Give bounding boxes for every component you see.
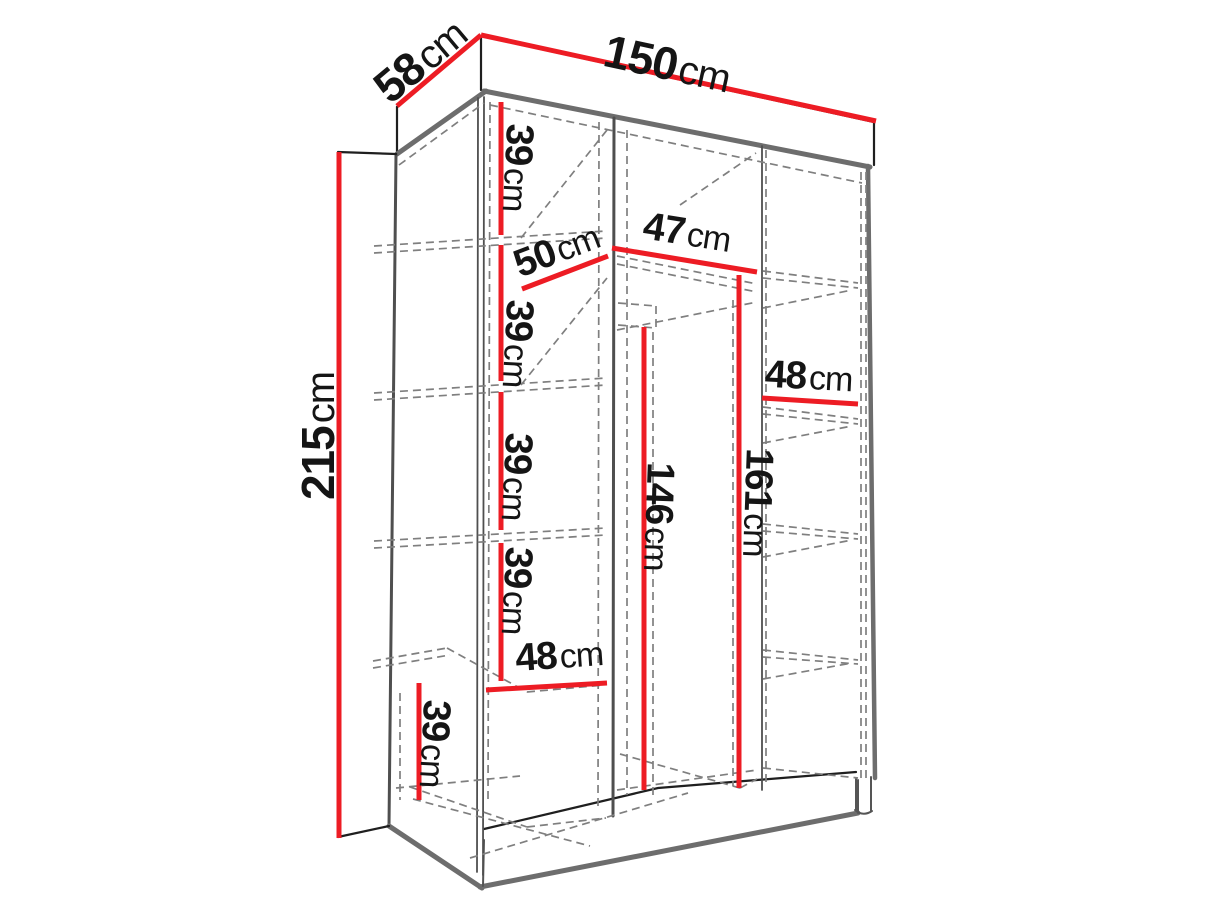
dim-label-height-215: 215cm xyxy=(292,372,344,500)
right-shelf-1 xyxy=(763,271,858,308)
dim-extension-top xyxy=(338,152,396,154)
left-wall-back-edge xyxy=(488,102,490,800)
right-shelf-4 xyxy=(763,650,858,679)
partition-middle-front-edge xyxy=(613,118,614,816)
hanging-rod xyxy=(618,303,656,328)
right-front-edge xyxy=(868,166,875,778)
left-bottom-edge xyxy=(389,826,482,888)
dim-line-48-right xyxy=(762,398,858,404)
dim-label-161: 161cm xyxy=(734,448,781,558)
dim-label-48-right: 48cm xyxy=(764,353,854,401)
dim-extension-bottom xyxy=(338,826,389,837)
ceiling-back-edge xyxy=(490,105,862,183)
right-shelf-2 xyxy=(763,407,858,443)
dim-label-width-150: 150cm xyxy=(599,24,735,102)
dim-label-depth-58: 58cm xyxy=(363,7,476,113)
plinth-bottom-edge xyxy=(480,813,858,887)
floor-front-edge xyxy=(484,772,856,829)
dim-label-39-2: 39cm xyxy=(494,299,542,389)
left-wall-inner-edge-a xyxy=(477,98,478,872)
partition-middle-hidden-a xyxy=(598,122,599,808)
left-shelf-3 xyxy=(374,528,606,548)
wardrobe-dimension-diagram: 58cm 150cm 215cm 39cm 50cm 47cm 39cm 48c… xyxy=(0,0,1214,911)
dim-label-39-1: 39cm xyxy=(494,123,542,213)
middle-column-depth-diag xyxy=(680,153,756,205)
left-front-edge xyxy=(389,154,396,826)
dim-label-146: 146cm xyxy=(635,462,682,572)
ceiling-left-edge xyxy=(399,103,484,165)
dim-label-48-left: 48cm xyxy=(514,631,605,680)
dim-label-39-4: 39cm xyxy=(493,546,541,636)
left-wall-inner-edge-b xyxy=(483,97,484,875)
dim-line-48-left xyxy=(486,683,607,690)
dim-label-39-bottom: 39cm xyxy=(411,699,459,789)
right-shelf-3 xyxy=(763,524,858,557)
dim-label-39-3: 39cm xyxy=(493,432,541,522)
dim-label-47: 47cm xyxy=(640,205,733,261)
